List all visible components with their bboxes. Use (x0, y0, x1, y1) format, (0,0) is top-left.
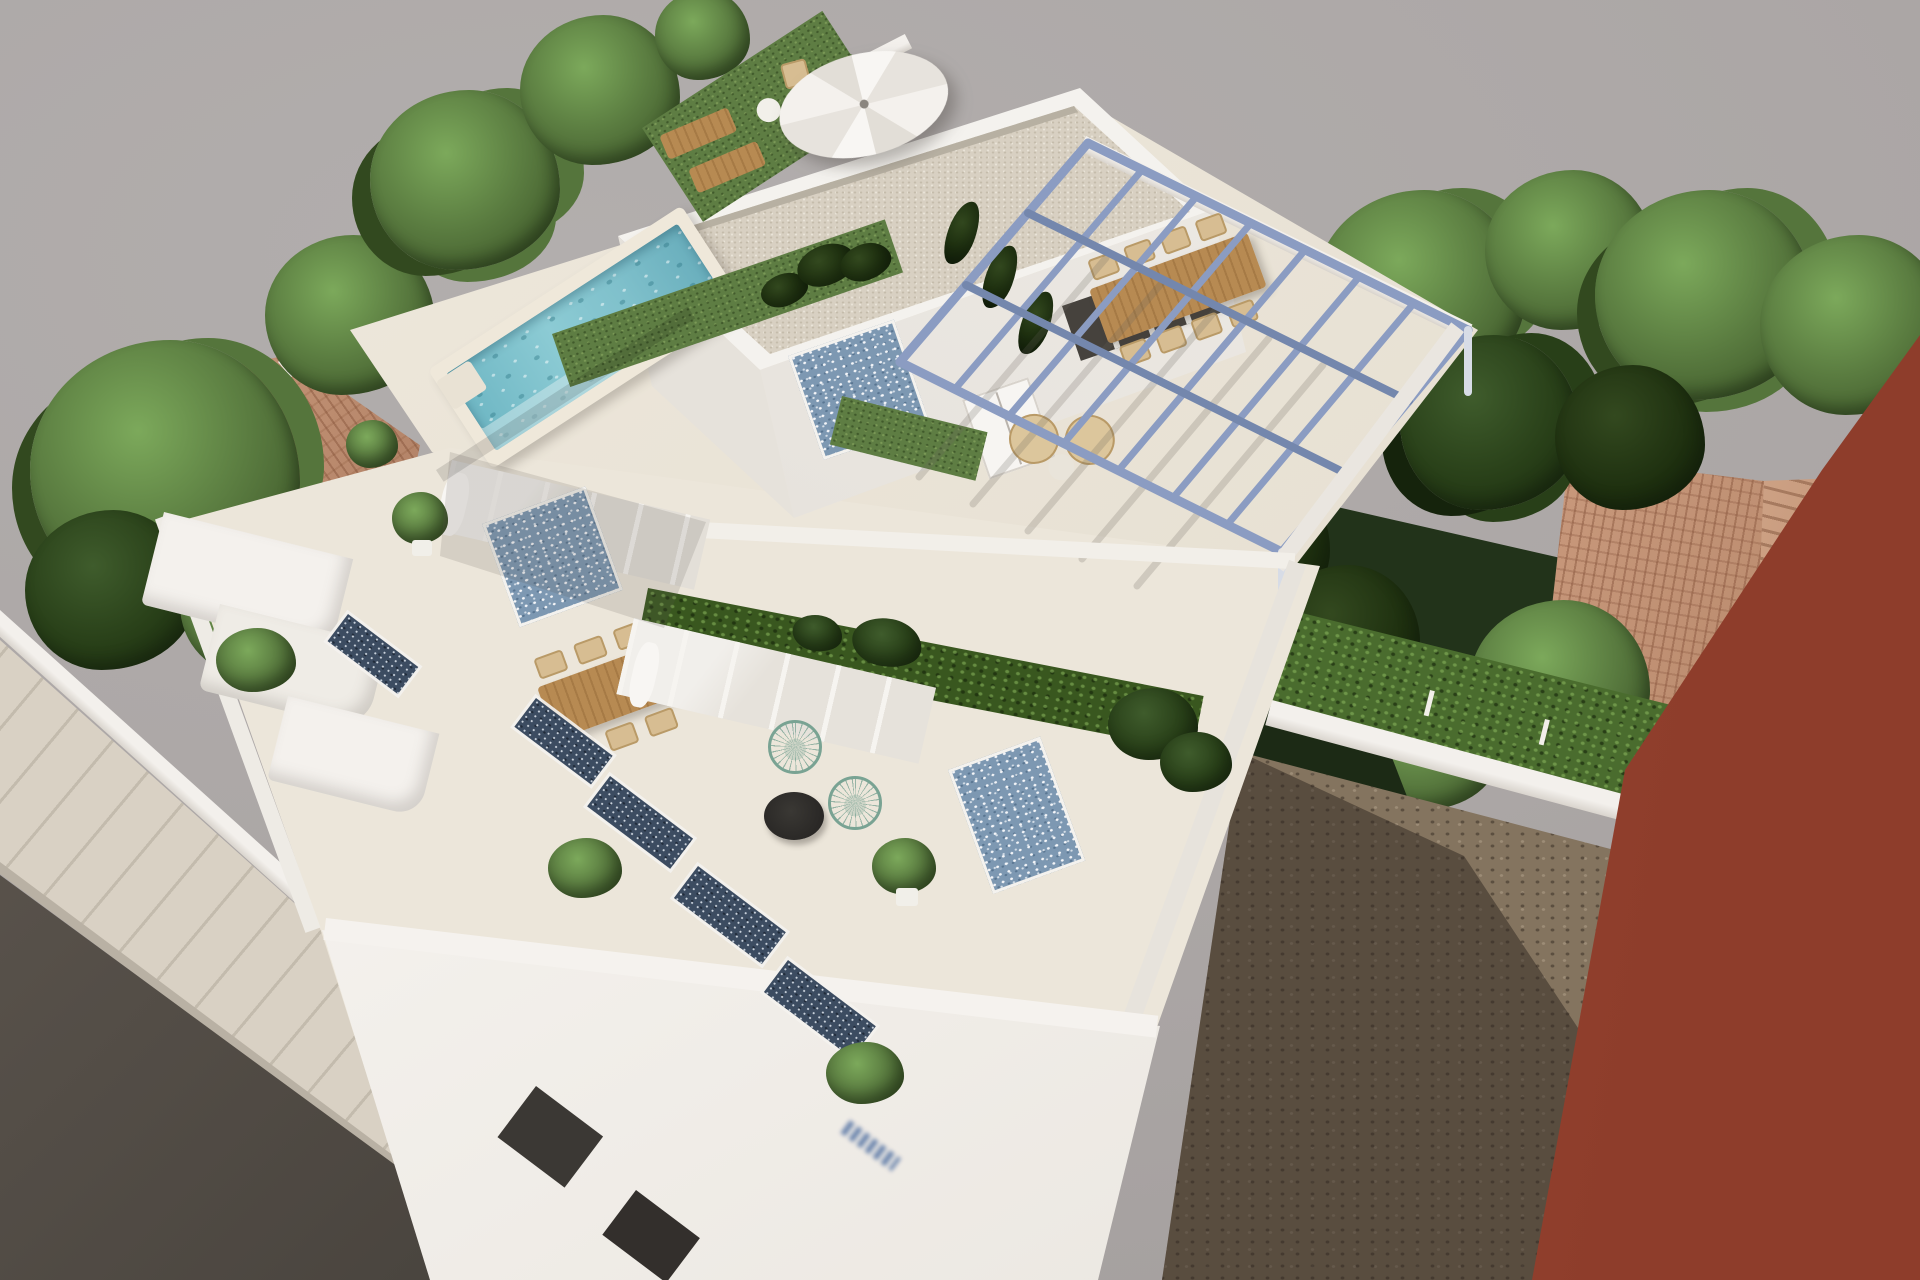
planter (412, 540, 432, 556)
dining-chair (644, 707, 680, 738)
tree (1555, 365, 1705, 510)
balcony-plant (346, 420, 398, 468)
potted-plant (392, 492, 448, 544)
round-black-table (764, 792, 824, 840)
dining-chair (604, 721, 640, 752)
front-bush (216, 628, 296, 692)
sun-lounger (688, 141, 766, 194)
planter (896, 888, 918, 906)
sun-lounger (659, 107, 737, 160)
acapulco-chair (828, 776, 882, 830)
dining-chair (1119, 337, 1153, 367)
dining-chair (1226, 298, 1260, 328)
potted-palm (872, 838, 936, 894)
umbrella-pole (859, 99, 870, 110)
acapulco-chair (768, 720, 822, 774)
render-viewport (0, 0, 1920, 1280)
banana-plant (1160, 732, 1232, 792)
dining-chair (1154, 324, 1188, 354)
dining-chair (1190, 311, 1224, 341)
front-bush (826, 1042, 904, 1104)
front-bush (548, 838, 622, 898)
